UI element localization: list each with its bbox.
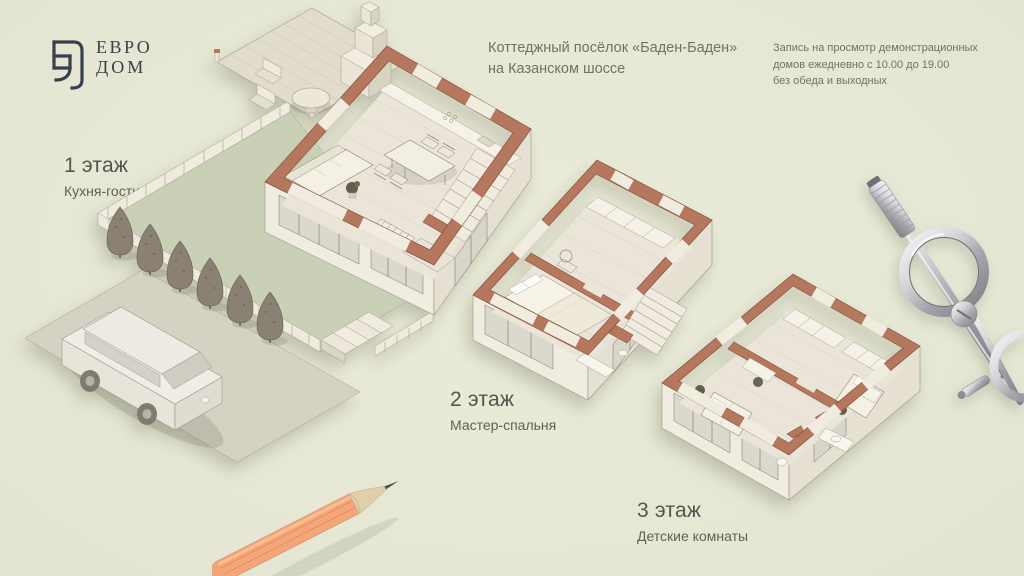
compass-illustration — [852, 162, 1024, 410]
pencil-tip — [384, 479, 399, 489]
viewing-schedule: Запись на просмотр демонстрационных домо… — [773, 40, 978, 90]
brochure-page: ЕВРО ДОМ Коттеджный посёлок «Баден-Баден… — [0, 0, 1024, 576]
compass-second-ring — [994, 334, 1024, 398]
compass-handle — [864, 174, 916, 239]
compass-ring — [904, 232, 984, 312]
compass-knob — [956, 374, 991, 401]
schedule-line-2: домов ежедневно с 10.00 до 19.00 — [773, 57, 978, 74]
schedule-line-3: без обеда и выходных — [773, 73, 978, 90]
patio-table — [291, 88, 331, 114]
pencil-illustration — [212, 468, 412, 576]
schedule-line-1: Запись на просмотр демонстрационных — [773, 40, 978, 57]
